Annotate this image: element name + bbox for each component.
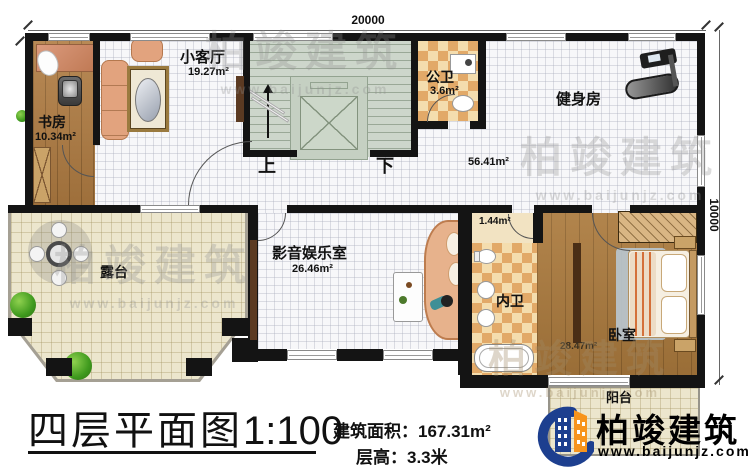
window — [628, 33, 676, 41]
floor-height-line: 层高：3.3米 — [356, 443, 448, 468]
wall-bedroom-bottom — [630, 375, 705, 388]
wall-media-bottom — [433, 349, 472, 361]
bed-blanket — [630, 252, 656, 336]
pubbath-faucet — [465, 59, 472, 66]
window — [253, 33, 333, 41]
building-area-line: 建筑面积：167.31m² — [333, 417, 491, 442]
plan-scale: 1:100 — [243, 409, 343, 453]
wall-pubbath-right — [478, 41, 486, 129]
treadmill — [619, 45, 689, 115]
balcony-door — [548, 377, 630, 386]
terrace-pillar — [46, 358, 72, 376]
bed-pillow — [661, 296, 687, 334]
study-cabinet — [33, 147, 51, 203]
pubbath-toilet — [452, 95, 474, 112]
study-monitor — [62, 80, 78, 98]
media-table-decor — [406, 282, 412, 288]
stair-landing-beam — [310, 82, 348, 89]
plan-title-block: 四层平面图1:100 — [28, 398, 343, 456]
study-area: 10.34m² — [35, 132, 76, 143]
terrace-label: 露台 — [100, 265, 128, 279]
bed-headboard — [689, 250, 697, 338]
terrace-chair — [51, 270, 67, 286]
wall-top — [25, 33, 705, 41]
gym-area: 56.41m² — [468, 157, 509, 168]
building-area-label: 建筑面积： — [333, 422, 418, 441]
brand-logo-icon — [534, 404, 594, 468]
living-rug-oval — [135, 78, 161, 122]
stair-down-label: 下 — [376, 157, 394, 175]
window — [383, 350, 433, 360]
floor-plan-canvas: 20000 10000 — [0, 0, 750, 474]
bedroom-nightstand — [674, 339, 696, 352]
window — [697, 255, 705, 315]
study-label: 书房 — [38, 115, 66, 129]
wall-stair-right — [411, 41, 418, 157]
wall-media-bottom — [337, 349, 383, 361]
bedroom-label: 卧室 — [608, 328, 636, 342]
media-area: 26.46m² — [292, 264, 333, 275]
living-tv-panel — [236, 76, 244, 122]
wall-bedroom-bottom — [460, 375, 548, 388]
bedroom-area: 28.47m² — [560, 342, 597, 352]
terrace-pillar — [186, 358, 212, 376]
wall-bath-bedroom — [533, 213, 543, 243]
wall-divider — [287, 205, 512, 213]
terrace-pillar — [8, 318, 32, 336]
window — [697, 135, 705, 187]
terrace-door-threshold — [140, 205, 200, 213]
right-dimension-label: 10000 — [707, 193, 721, 237]
stair-up-label: 上 — [258, 157, 276, 175]
media-label: 影音娱乐室 — [272, 246, 347, 261]
brand-website: www.baijunjz.com — [598, 443, 750, 459]
top-dimension-label: 20000 — [338, 13, 398, 27]
terrace-table — [46, 241, 72, 267]
media-table-decor — [399, 296, 407, 304]
media-coffee-table — [393, 272, 423, 322]
window — [130, 33, 210, 41]
wall-divider — [8, 205, 140, 213]
wall-study-living — [93, 41, 100, 145]
living-area: 19.27m² — [188, 67, 229, 78]
building-area-value: 167.31m² — [418, 422, 491, 441]
bed-pillow — [661, 254, 687, 292]
terrace-chair — [51, 222, 67, 238]
terrace-bush — [10, 292, 36, 318]
innerbath-toilet-tank — [474, 251, 480, 262]
pubbath-label: 公卫 — [426, 70, 454, 84]
window — [506, 33, 566, 41]
stair-direction-arrow — [267, 92, 269, 138]
title-underline — [28, 451, 316, 454]
innerbath-label: 内卫 — [496, 294, 524, 308]
bedroom-tv-cabinet — [573, 243, 581, 343]
wall-left — [25, 33, 33, 213]
wall-divider — [630, 205, 705, 213]
terrace-chair — [29, 246, 45, 262]
innerbath-sink — [477, 309, 495, 327]
wall-stair-left — [243, 41, 250, 157]
wall-divider — [200, 205, 258, 213]
gym-label: 健身房 — [556, 92, 601, 107]
brand-logo: 柏竣建筑 www.baijunjz.com — [534, 402, 748, 468]
dim-tick — [23, 20, 33, 30]
window — [48, 33, 90, 41]
floor-height-value: 3.3米 — [407, 448, 448, 467]
wall-pubbath-bottom — [470, 121, 486, 129]
living-label: 小客厅 — [180, 50, 225, 65]
floor-height-label: 层高： — [356, 448, 407, 467]
wall-pubbath-bottom — [411, 121, 448, 129]
media-tv-cabinet — [250, 240, 257, 340]
innerbath-bathtub-inner — [479, 348, 529, 368]
innerbath-sink — [477, 281, 495, 299]
wall-media-bottom — [240, 349, 287, 361]
closet-area: 1.44m² — [479, 217, 511, 227]
living-sofa — [101, 60, 129, 140]
dim-tick — [701, 20, 711, 30]
terrace-pillar — [222, 318, 248, 336]
top-dimension-line — [28, 30, 706, 31]
terrace-chair — [73, 246, 89, 262]
stair-arrowhead — [263, 84, 273, 93]
elevator-shaft — [300, 96, 358, 150]
pubbath-area: 3.6m² — [430, 86, 459, 97]
wall-divider — [534, 205, 592, 213]
bedroom-nightstand — [674, 236, 696, 249]
media-person-head — [441, 295, 453, 307]
window — [287, 350, 337, 360]
plan-title: 四层平面图 — [28, 409, 243, 453]
living-armchair — [131, 38, 163, 62]
dim-tick — [15, 36, 25, 46]
